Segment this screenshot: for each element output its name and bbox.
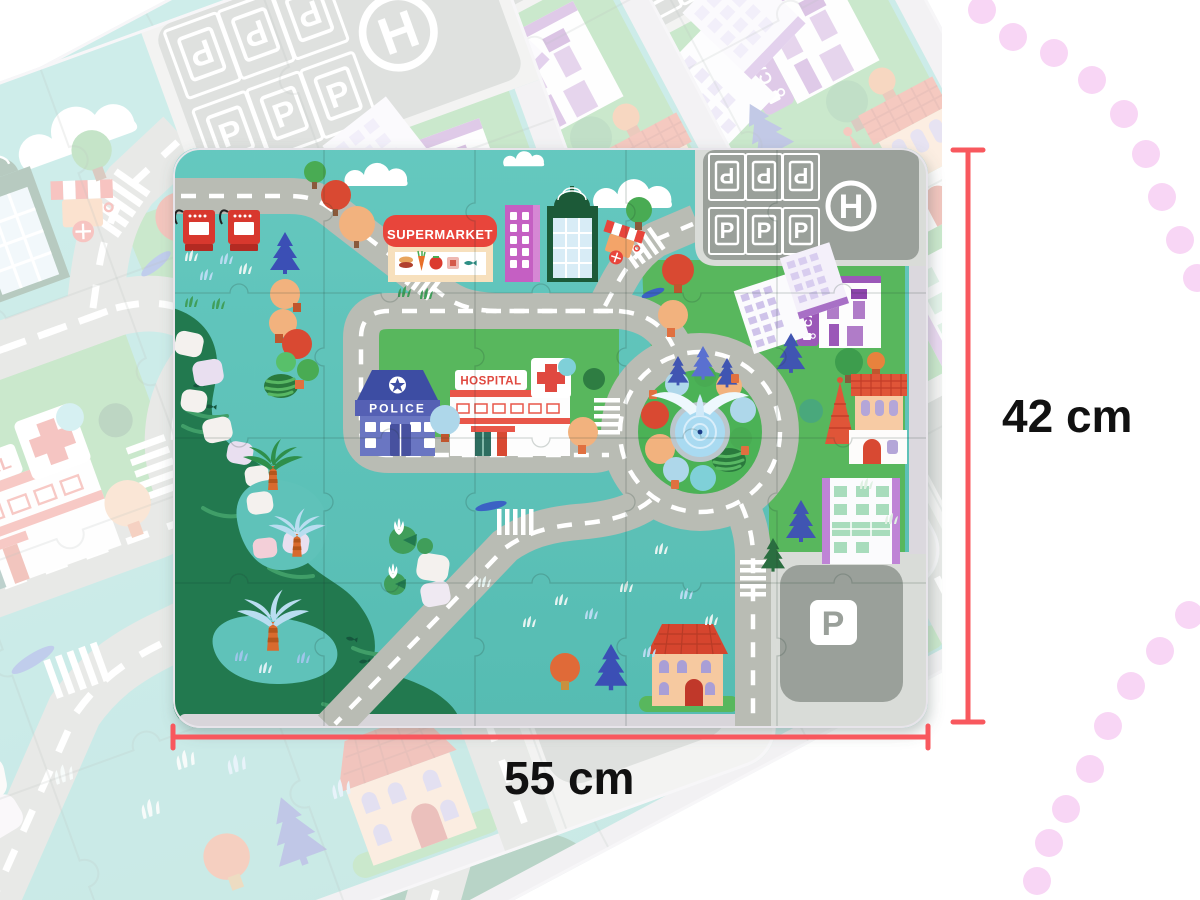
puzzle-board (173, 148, 928, 728)
height-dimension-label: 42 cm (1002, 389, 1132, 443)
width-dimension-label: 55 cm (504, 751, 634, 805)
product-photo: P P P P P P H P (0, 0, 1200, 900)
pink-dots-decoration (968, 0, 1200, 895)
height-dimension-line (953, 150, 983, 722)
